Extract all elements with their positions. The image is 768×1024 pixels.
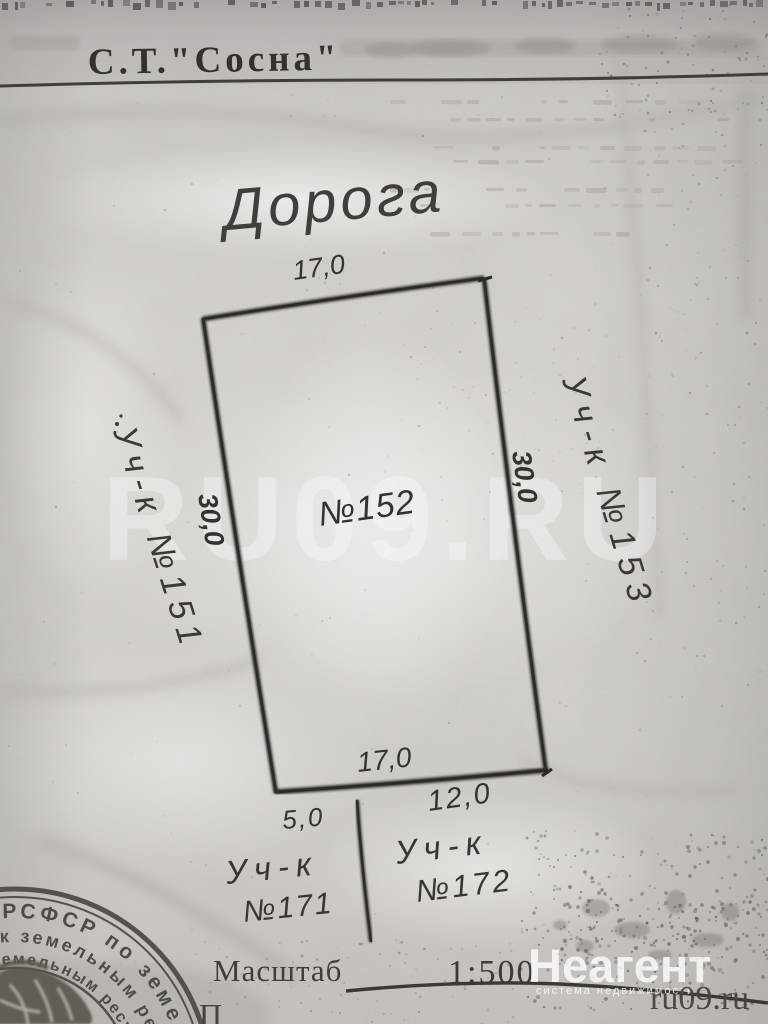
svg-text:ru09.ru: ru09.ru xyxy=(650,980,749,1017)
svg-text:П: П xyxy=(199,997,222,1024)
svg-text:17,0: 17,0 xyxy=(355,741,413,778)
svg-text:Масштаб: Масштаб xyxy=(213,953,342,988)
svg-text:1:500: 1:500 xyxy=(448,954,535,991)
svg-text:5,0: 5,0 xyxy=(281,801,326,835)
svg-text:С.Т."Сосна": С.Т."Сосна" xyxy=(87,38,340,83)
